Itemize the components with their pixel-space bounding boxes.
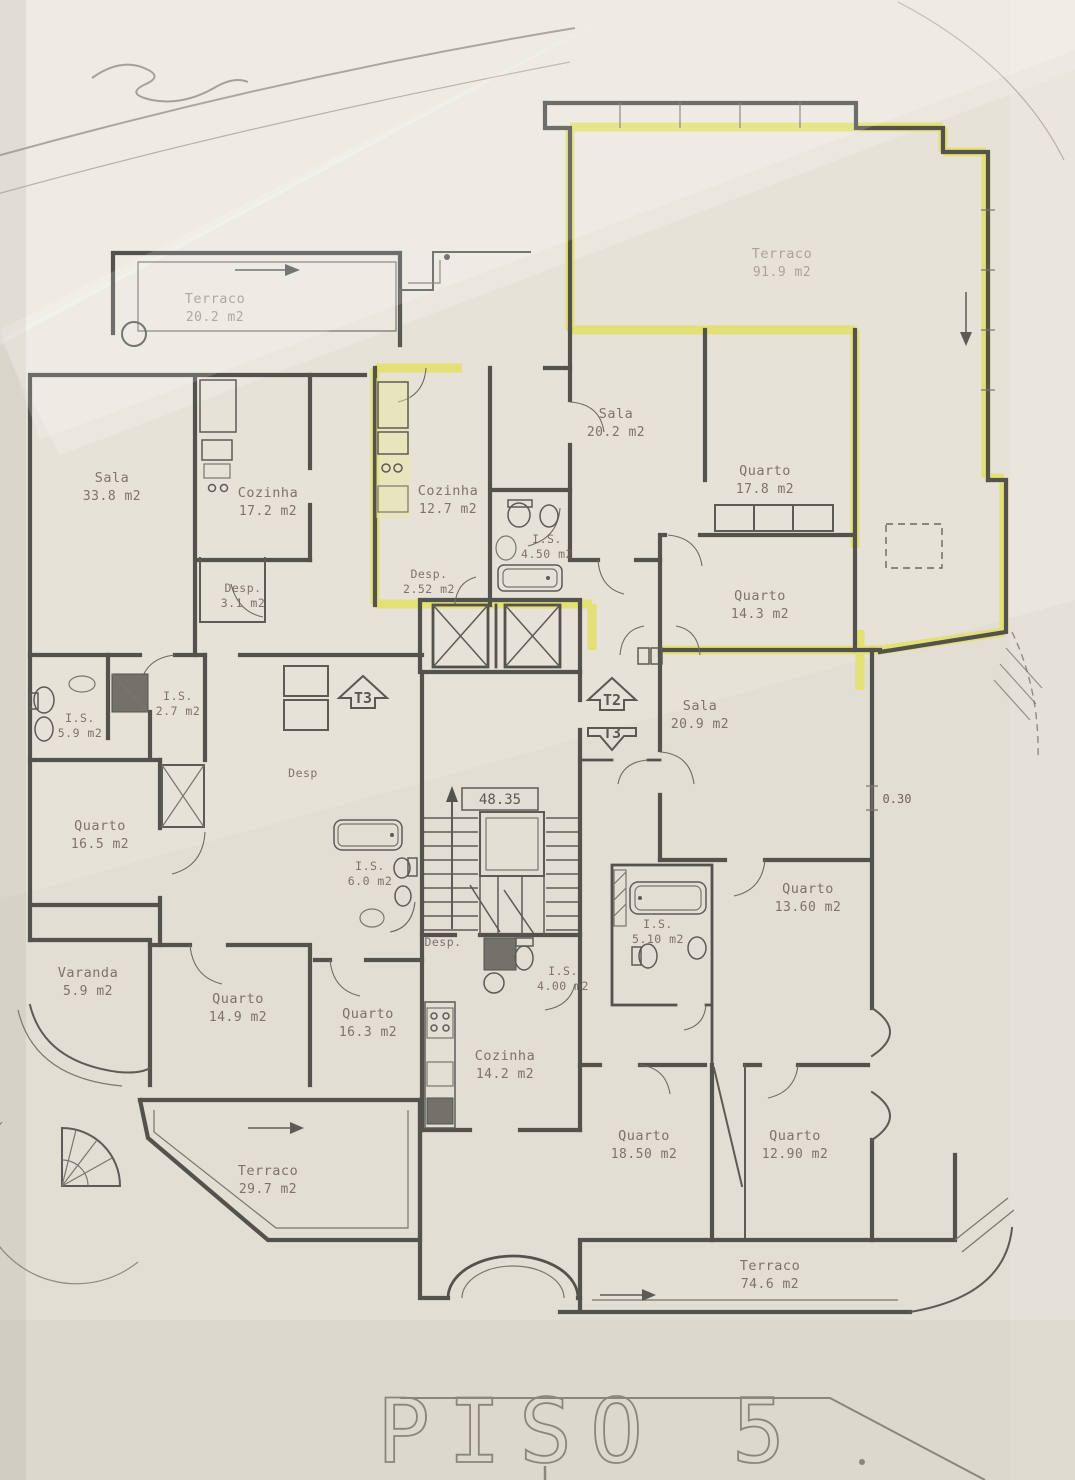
interior-walls: [0, 330, 1042, 1312]
unit-tag-t3-hall: T3: [339, 676, 387, 708]
room-label-desp-hall: Desp: [288, 766, 318, 780]
unit-tag-t3-lower-label: T3: [603, 724, 621, 742]
room-label-quarto-s2: Quarto18.50 m2: [611, 1128, 678, 1162]
room-label-terraco-sw: Terraco29.7 m2: [238, 1163, 298, 1197]
room-label-quarto-s3: Quarto12.90 m2: [762, 1128, 829, 1162]
room-label-cozinha-w: Cozinha17.2 m2: [238, 485, 298, 519]
fixtures-kitchen-west: [200, 380, 236, 492]
room-label-quarto-ne: Quarto17.8 m2: [736, 463, 794, 497]
room-label-is-center: I.S.6.0 m2: [348, 859, 393, 888]
unit-tag-t3-lower: T3: [588, 724, 636, 750]
room-label-quarto-sw: Quarto14.9 m2: [209, 991, 267, 1025]
unit-tag-t3-hall-label: T3: [354, 689, 372, 707]
site-lines: [0, 2, 1064, 196]
room-label-is-w2: I.S.2.7 m2: [156, 689, 201, 718]
room-label-terraco-nw: Terraco20.2 m2: [185, 291, 245, 325]
spiral-stair: [62, 1128, 120, 1186]
fixtures-kitchen-center: [376, 378, 410, 518]
staircase: [424, 786, 578, 935]
room-label-desp-c: Desp.2.52 m2: [403, 567, 455, 596]
room-label-varanda: Varanda5.9 m2: [58, 965, 118, 999]
room-label-quarto-w: Quarto16.5 m2: [71, 818, 129, 852]
door-arcs: [140, 368, 798, 1098]
handwriting-scribble: [92, 65, 248, 102]
unit-tag-t2: T2: [588, 678, 636, 710]
wardrobe-quarto-west: [162, 765, 204, 827]
stair-level-annotation: 48.35: [479, 792, 521, 808]
floor-title: PISO 5: [377, 1380, 803, 1480]
room-label-quarto-se: Quarto13.60 m2: [775, 881, 842, 915]
title-block: PISO 5: [377, 1380, 985, 1480]
room-label-terraco-ne: Terraco91.9 m2: [752, 246, 812, 280]
room-label-cozinha-c: Cozinha12.7 m2: [418, 483, 478, 517]
room-label-quarto-s1: Quarto16.3 m2: [339, 1006, 397, 1040]
room-label-desp-w: Desp.3.1 m2: [221, 581, 266, 610]
elevator-right: [496, 605, 560, 667]
room-labels: Terraco20.2 m2 Terraco91.9 m2 Sala33.8 m…: [58, 246, 842, 1292]
floor-plan-drawing: T3 T2 T3 48.35 0.30 Terraco20.2 m2 Terra…: [0, 0, 1075, 1480]
fixtures-kitchen-south: [425, 1002, 455, 1128]
floor-plan-page: T3 T2 T3 48.35 0.30 Terraco20.2 m2 Terra…: [0, 0, 1075, 1480]
room-label-desp-s: Desp.: [424, 935, 461, 949]
room-label-is-w1: I.S.5.9 m2: [58, 711, 103, 740]
outer-walls: [113, 103, 1006, 652]
unit-tag-t2-label: T2: [603, 691, 621, 709]
room-label-sala-ne: Sala20.2 m2: [587, 406, 645, 440]
svg-text:0.30: 0.30: [883, 792, 912, 806]
room-label-is-e: I.S.5.10 m2: [632, 917, 684, 946]
room-label-cozinha-s: Cozinha14.2 m2: [475, 1048, 535, 1082]
fixtures-bath-south: [484, 938, 533, 993]
room-label-sala-w: Sala33.8 m2: [83, 470, 141, 504]
elevator-left: [433, 605, 488, 667]
room-label-quarto-e: Quarto14.3 m2: [731, 588, 789, 622]
room-label-is-c: I.S.4.50 m2: [521, 532, 573, 561]
room-label-terraco-s: Terraco74.6 m2: [740, 1258, 800, 1292]
room-label-sala-e: Sala20.9 m2: [671, 698, 729, 732]
